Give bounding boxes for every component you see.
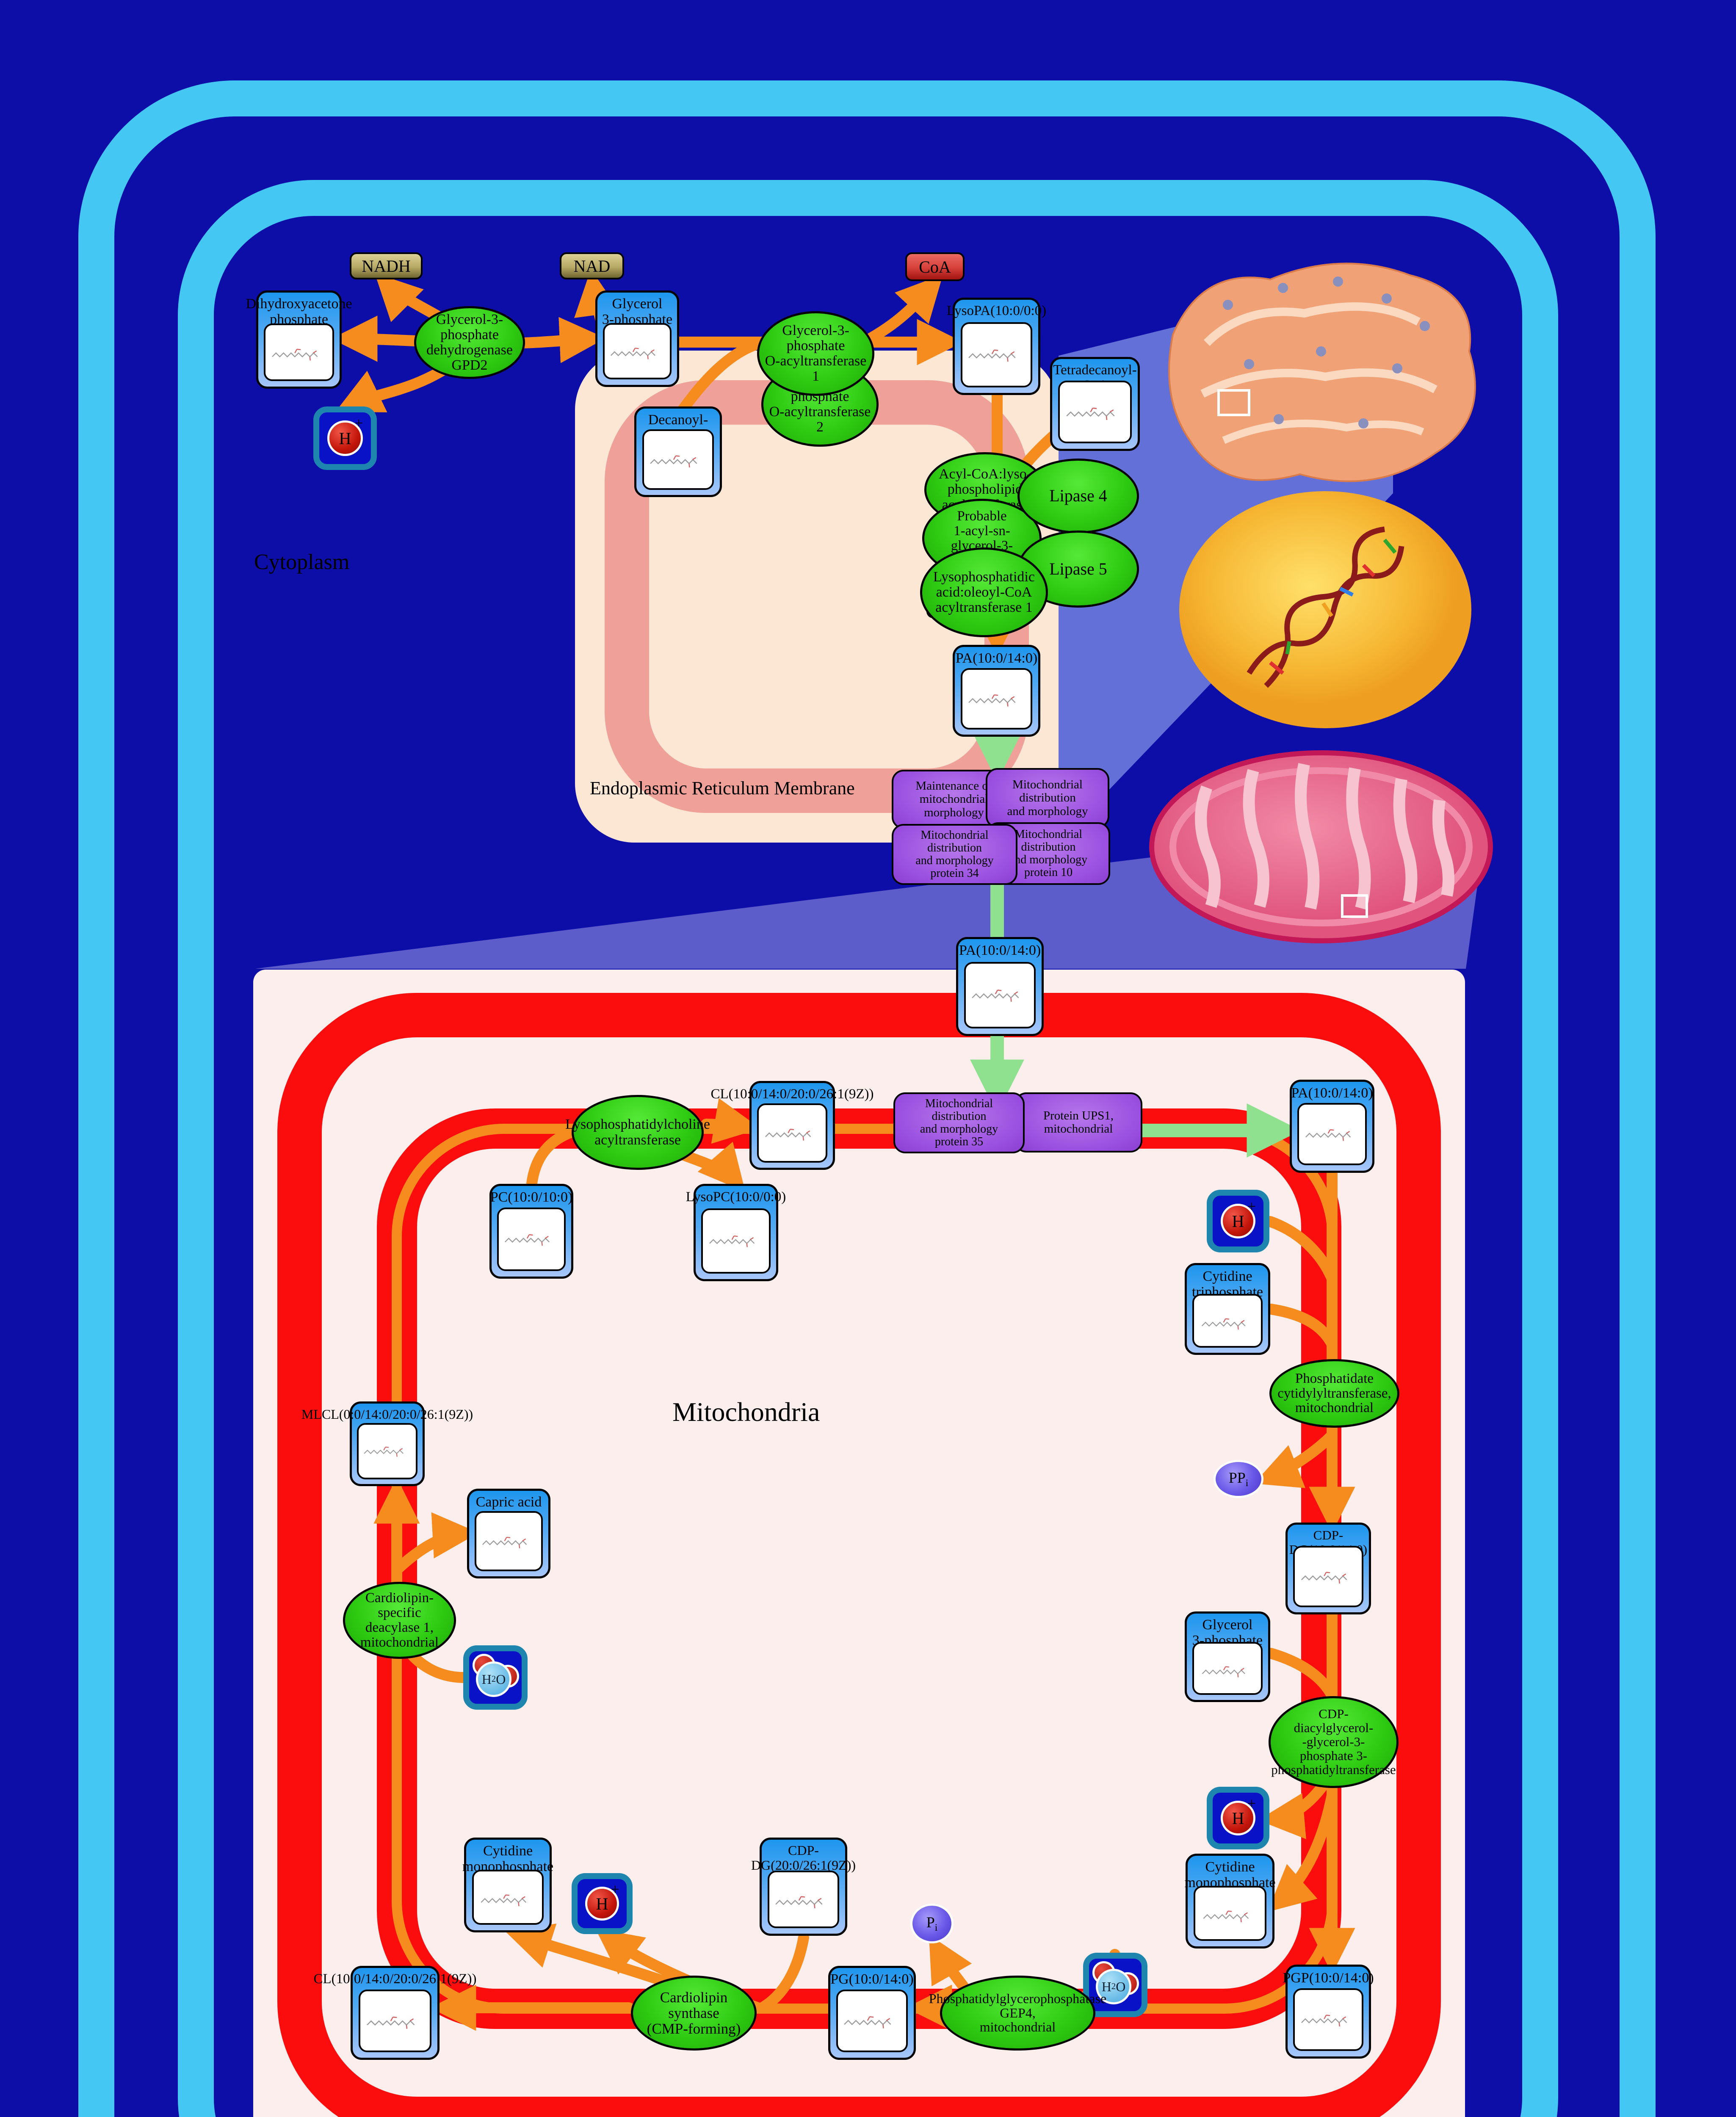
structure-thumbnail (836, 1990, 908, 2052)
metabolite-mlcl[interactable]: MLCL(0:0/14:0/20:0/26:1(9Z)) (350, 1401, 425, 1486)
metabolite-decanoyl-coa[interactable]: Decanoyl-CoA (634, 406, 722, 497)
enzyme-gpat1-text: Glycerol-3- phosphate O-acyltransferase … (765, 323, 867, 384)
metabolite-pa-imm[interactable]: PA(10:0/14:0) (1290, 1080, 1374, 1173)
enzyme-lipase-4[interactable]: Lipase 4 (1017, 459, 1139, 533)
metabolite-pc[interactable]: PC(10:0/10:0) (489, 1184, 573, 1279)
metabolite-cl-imm-bottom[interactable]: CL(10:0/14:0/20:0/26:1(9Z)) (351, 1966, 440, 2060)
cofactor-nad[interactable]: NAD (560, 252, 624, 279)
structure-thumbnail (497, 1208, 566, 1271)
protein-ups1-text: Protein UPS1, mitochondrial (1043, 1109, 1114, 1136)
structure-thumbnail (961, 668, 1032, 730)
protein-mitochondrial-distribution-morphology[interactable]: Mitochondrial distribution and morpholog… (986, 768, 1109, 828)
enzyme-lysophosphatidylcholine-acyltransferase[interactable]: Lysophosphatidylcholine acyltransferase (572, 1095, 704, 1170)
metabolite-label: PGP(10:0/14:0) (1288, 1970, 1369, 1986)
metabolite-label: MLCL(0:0/14:0/20:0/26:1(9Z)) (352, 1407, 423, 1422)
metabolite-label: LysoPC(10:0/0:0) (696, 1189, 776, 1205)
cofactor-nadh-text: NADH (362, 256, 411, 276)
structure-thumbnail (475, 1511, 543, 1571)
enzyme-gpd2[interactable]: Glycerol-3- phosphate dehydrogenase GPD2 (414, 306, 525, 379)
metabolite-tetradecanoyl-coa[interactable]: Tetradecanoyl-CoA (1050, 357, 1140, 451)
enzyme-gpat1[interactable]: Glycerol-3- phosphate O-acyltransferase … (757, 311, 874, 396)
protein-ups1[interactable]: Protein UPS1, mitochondrial (1015, 1092, 1142, 1152)
metabolite-pa-omm[interactable]: PA(10:0/14:0) (956, 937, 1044, 1036)
er-membrane-label: Endoplasmic Reticulum Membrane (590, 777, 864, 840)
structure-thumbnail (701, 1208, 770, 1274)
enzyme-lpaat1-text: Lysophosphatidic acid:oleoyl-CoA acyltra… (933, 569, 1035, 615)
metabolite-cdp-dg-imm[interactable]: CDP-DG(10:0/14:0) (1285, 1523, 1371, 1614)
metabolite-label: LysoPA(10:0/0:0) (955, 303, 1038, 318)
enzyme-lipase-5-text: Lipase 5 (1049, 560, 1107, 578)
enzyme-cdp-diacylglycerol-g3p-phosphatidyltransferase[interactable]: CDP- diacylglycerol- -glycerol-3- phosph… (1269, 1696, 1399, 1788)
metabolite-lysopc[interactable]: LysoPC(10:0/0:0) (694, 1184, 778, 1281)
metabolite-cytidine-triphosphate[interactable]: Cytidine triphosphate (1185, 1263, 1270, 1355)
metabolite-label: Dihydroxyacetone phosphate (258, 296, 340, 328)
metabolite-cdp-dg-matrix[interactable]: CDP- DG(20:0/26:1(9Z)) (760, 1838, 847, 1936)
metabolite-label: CDP- DG(20:0/26:1(9Z)) (762, 1843, 845, 1873)
metabolite-label: PA(10:0/14:0) (1292, 1085, 1372, 1101)
structure-thumbnail (1293, 1988, 1363, 2051)
structure-thumbnail (1058, 381, 1132, 443)
cytoplasm-label-text: Cytoplasm (254, 550, 349, 574)
enzyme-phosphatidate-cytidylyltransferase-text: Phosphatidate cytidylyltransferase, mito… (1277, 1371, 1391, 1416)
water-left[interactable]: H2O (463, 1645, 528, 1710)
nodes-layer: CytoplasmEndoplasmic Reticulum MembraneM… (0, 0, 1736, 2117)
enzyme-gep4[interactable]: Phosphatidylglycerophosphatase GEP4, mit… (940, 1976, 1095, 2051)
er-membrane-label-text: Endoplasmic Reticulum Membrane (590, 778, 855, 799)
metabolite-cytidine-monophosphate-matrix[interactable]: Cytidine monophosphate (464, 1838, 552, 1932)
metabolite-cytidine-monophosphate-imm[interactable]: Cytidine monophosphate (1186, 1854, 1274, 1948)
protein-mitochondrial-distribution-morphology-text: Mitochondrial distribution and morpholog… (1007, 778, 1088, 818)
structure-thumbnail (1192, 1642, 1262, 1694)
structure-thumbnail (264, 323, 334, 381)
enzyme-gpd2-text: Glycerol-3- phosphate dehydrogenase GPD2 (426, 312, 513, 373)
metabolite-pg[interactable]: PG(10:0/14:0) (828, 1966, 916, 2060)
metabolite-label: PG(10:0/14:0) (830, 1971, 914, 1987)
cytoplasm-label: Cytoplasm (254, 550, 513, 595)
structure-thumbnail (472, 1870, 544, 1925)
metabolite-pa-er[interactable]: PA(10:0/14:0) (953, 645, 1040, 737)
metabolite-pgp[interactable]: PGP(10:0/14:0) (1285, 1965, 1371, 2059)
cofactor-coa-top-text: CoA (919, 257, 951, 277)
protein-mdm35[interactable]: Mitochondrial distribution and morpholog… (893, 1092, 1025, 1153)
metabolite-glycerol-3-phosphate-mito[interactable]: Glycerol 3-phosphate (1185, 1611, 1270, 1702)
structure-thumbnail (359, 1990, 431, 2052)
protein-mdm34[interactable]: Mitochondrial distribution and morpholog… (892, 824, 1017, 885)
enzyme-cardiolipin-specific-deacylase-1-text: Cardiolipin- specific deacylase 1, mitoc… (360, 1591, 439, 1650)
metabolite-label: CL(10:0/14:0/20:0/26:1(9Z)) (353, 1971, 437, 1987)
metabolite-capric-acid[interactable]: Capric acid (467, 1489, 550, 1578)
proton-imm-upper[interactable]: H+ (1207, 1190, 1269, 1252)
metabolite-label: PC(10:0/10:0) (492, 1189, 571, 1205)
phosphate-ppi[interactable]: PPi (1214, 1460, 1263, 1498)
enzyme-lipase-4-text: Lipase 4 (1049, 487, 1107, 505)
metabolite-lysopa[interactable]: LysoPA(10:0/0:0) (953, 298, 1040, 395)
structure-thumbnail (1194, 1886, 1266, 1941)
structure-thumbnail (768, 1871, 839, 1928)
structure-thumbnail (642, 429, 714, 490)
structure-thumbnail (603, 323, 672, 379)
metabolite-glycerol-3-phosphate-cytoplasm[interactable]: Glycerol 3-phosphate (595, 290, 679, 387)
structure-thumbnail (1293, 1546, 1363, 1607)
phosphate-pi[interactable]: Pi (910, 1904, 954, 1943)
enzyme-phosphatidate-cytidylyltransferase[interactable]: Phosphatidate cytidylyltransferase, mito… (1269, 1359, 1399, 1428)
metabolite-dihydroxyacetone-phosphate[interactable]: Dihydroxyacetone phosphate (256, 290, 342, 389)
enzyme-cardiolipin-synthase[interactable]: Cardiolipin synthase (CMP-forming) (631, 1976, 757, 2051)
proton-imm-lower[interactable]: H+ (1207, 1787, 1269, 1849)
enzyme-lpaat1[interactable]: Lysophosphatidic acid:oleoyl-CoA acyltra… (920, 547, 1048, 637)
metabolite-label: PA(10:0/14:0) (958, 942, 1042, 958)
metabolite-label: CL(10:0/14:0/20:0/26:1(9Z)) (752, 1086, 833, 1102)
structure-thumbnail (964, 962, 1036, 1028)
structure-thumbnail (757, 1103, 827, 1163)
cofactor-coa-top[interactable]: CoA (905, 252, 965, 281)
cofactor-nadh[interactable]: NADH (350, 252, 423, 279)
structure-thumbnail (1297, 1103, 1366, 1165)
mitochondria-label: Mitochondria (672, 1396, 1050, 1461)
enzyme-cdp-diacylglycerol-g3p-phosphatidyltransferase-text: CDP- diacylglycerol- -glycerol-3- phosph… (1271, 1707, 1396, 1777)
protein-mdm10-text: Mitochondrial distribution and morpholog… (1009, 828, 1087, 879)
proton-cytoplasm[interactable]: H+ (313, 406, 377, 470)
cofactor-nad-text: NAD (574, 256, 611, 276)
enzyme-cardiolipin-synthase-text: Cardiolipin synthase (CMP-forming) (647, 1990, 741, 2037)
pathway-diagram: CytoplasmEndoplasmic Reticulum MembraneM… (0, 0, 1736, 2117)
structure-thumbnail (357, 1423, 418, 1479)
protein-mdm34-text: Mitochondrial distribution and morpholog… (915, 829, 993, 880)
proton-matrix-bottom[interactable]: H+ (572, 1873, 633, 1934)
enzyme-gep4-text: Phosphatidylglycerophosphatase GEP4, mit… (929, 1992, 1106, 2035)
enzyme-lysophosphatidylcholine-acyltransferase-text: Lysophosphatidylcholine acyltransferase (565, 1117, 710, 1147)
protein-maintenance-mitochondrial-morphology-text: Maintenance of mitochondrial morphology (915, 779, 992, 819)
enzyme-cardiolipin-specific-deacylase-1[interactable]: Cardiolipin- specific deacylase 1, mitoc… (343, 1582, 456, 1659)
metabolite-label: Capric acid (469, 1494, 548, 1510)
mitochondria-label-text: Mitochondria (672, 1397, 820, 1427)
metabolite-label: PA(10:0/14:0) (955, 650, 1038, 666)
protein-mdm35-text: Mitochondrial distribution and morpholog… (920, 1097, 998, 1149)
metabolite-cl-imm-top[interactable]: CL(10:0/14:0/20:0/26:1(9Z)) (749, 1081, 835, 1170)
structure-thumbnail (1192, 1294, 1262, 1347)
structure-thumbnail (961, 322, 1032, 387)
